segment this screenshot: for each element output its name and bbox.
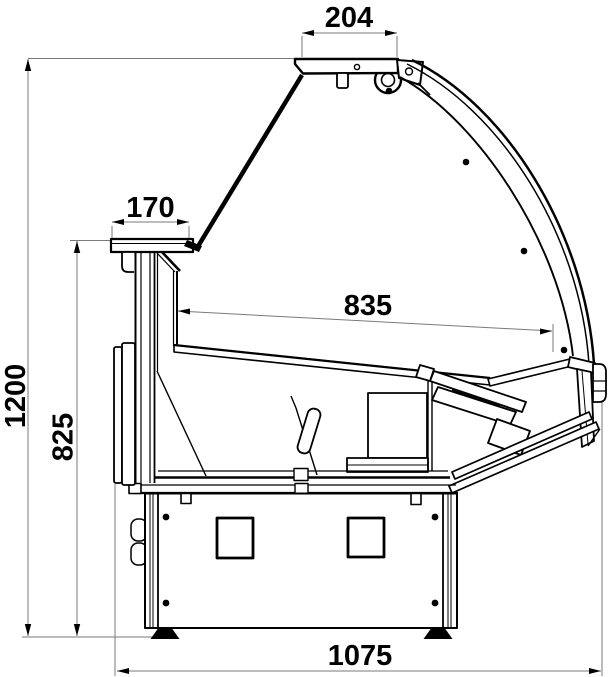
dim-label-worktop-depth: 170 xyxy=(126,192,174,224)
shelf-bracket xyxy=(122,252,134,272)
base-cabinet xyxy=(145,494,457,629)
vent-cutout xyxy=(217,518,253,558)
screw-dot-icon xyxy=(163,600,170,607)
adjustable-feet xyxy=(151,629,453,640)
screw-dot-icon xyxy=(561,347,568,354)
foot-right xyxy=(424,629,453,640)
dim-label-overall-depth: 1075 xyxy=(328,640,393,672)
screw-dot-icon xyxy=(432,600,439,607)
panel-screws xyxy=(386,88,568,354)
angled-skirt xyxy=(449,412,599,493)
technical-drawing-canvas: 204 170 835 1200 825 1075 xyxy=(0,0,608,677)
display-deck xyxy=(174,345,576,386)
frame-joint xyxy=(294,469,308,481)
dim-label-canopy-depth: 204 xyxy=(325,2,373,34)
dim-label-deck-depth: 835 xyxy=(344,290,392,322)
interior-box xyxy=(368,393,427,458)
frame-joint xyxy=(295,484,308,494)
screw-dot-icon xyxy=(386,88,393,95)
panel-clip xyxy=(181,494,191,504)
interior-slope xyxy=(157,371,206,476)
display-counter-section-drawing: 204 170 835 1200 825 1075 xyxy=(0,0,608,677)
side-bumper xyxy=(114,343,135,485)
canopy-screw-icon xyxy=(354,64,359,69)
curved-glass-panel xyxy=(400,60,594,364)
front-glass xyxy=(197,75,302,248)
panel-clip xyxy=(411,494,421,505)
screw-dot-icon xyxy=(163,514,170,521)
foot-left xyxy=(151,629,180,640)
dim-label-overall-height: 1200 xyxy=(0,364,32,429)
support-bracket xyxy=(296,407,322,455)
dim-label-worktop-height: 825 xyxy=(48,413,80,461)
deck-front-cover xyxy=(488,358,576,386)
screw-dot-icon xyxy=(432,514,439,521)
end-cap-bumper xyxy=(593,364,606,402)
canopy-lamp-tab xyxy=(337,73,348,88)
worktop-shelf xyxy=(111,239,193,252)
screw-dot-icon xyxy=(463,159,470,166)
vent-cutout xyxy=(348,518,384,557)
screw-dot-icon xyxy=(521,248,528,255)
interior-fittings xyxy=(291,368,432,475)
